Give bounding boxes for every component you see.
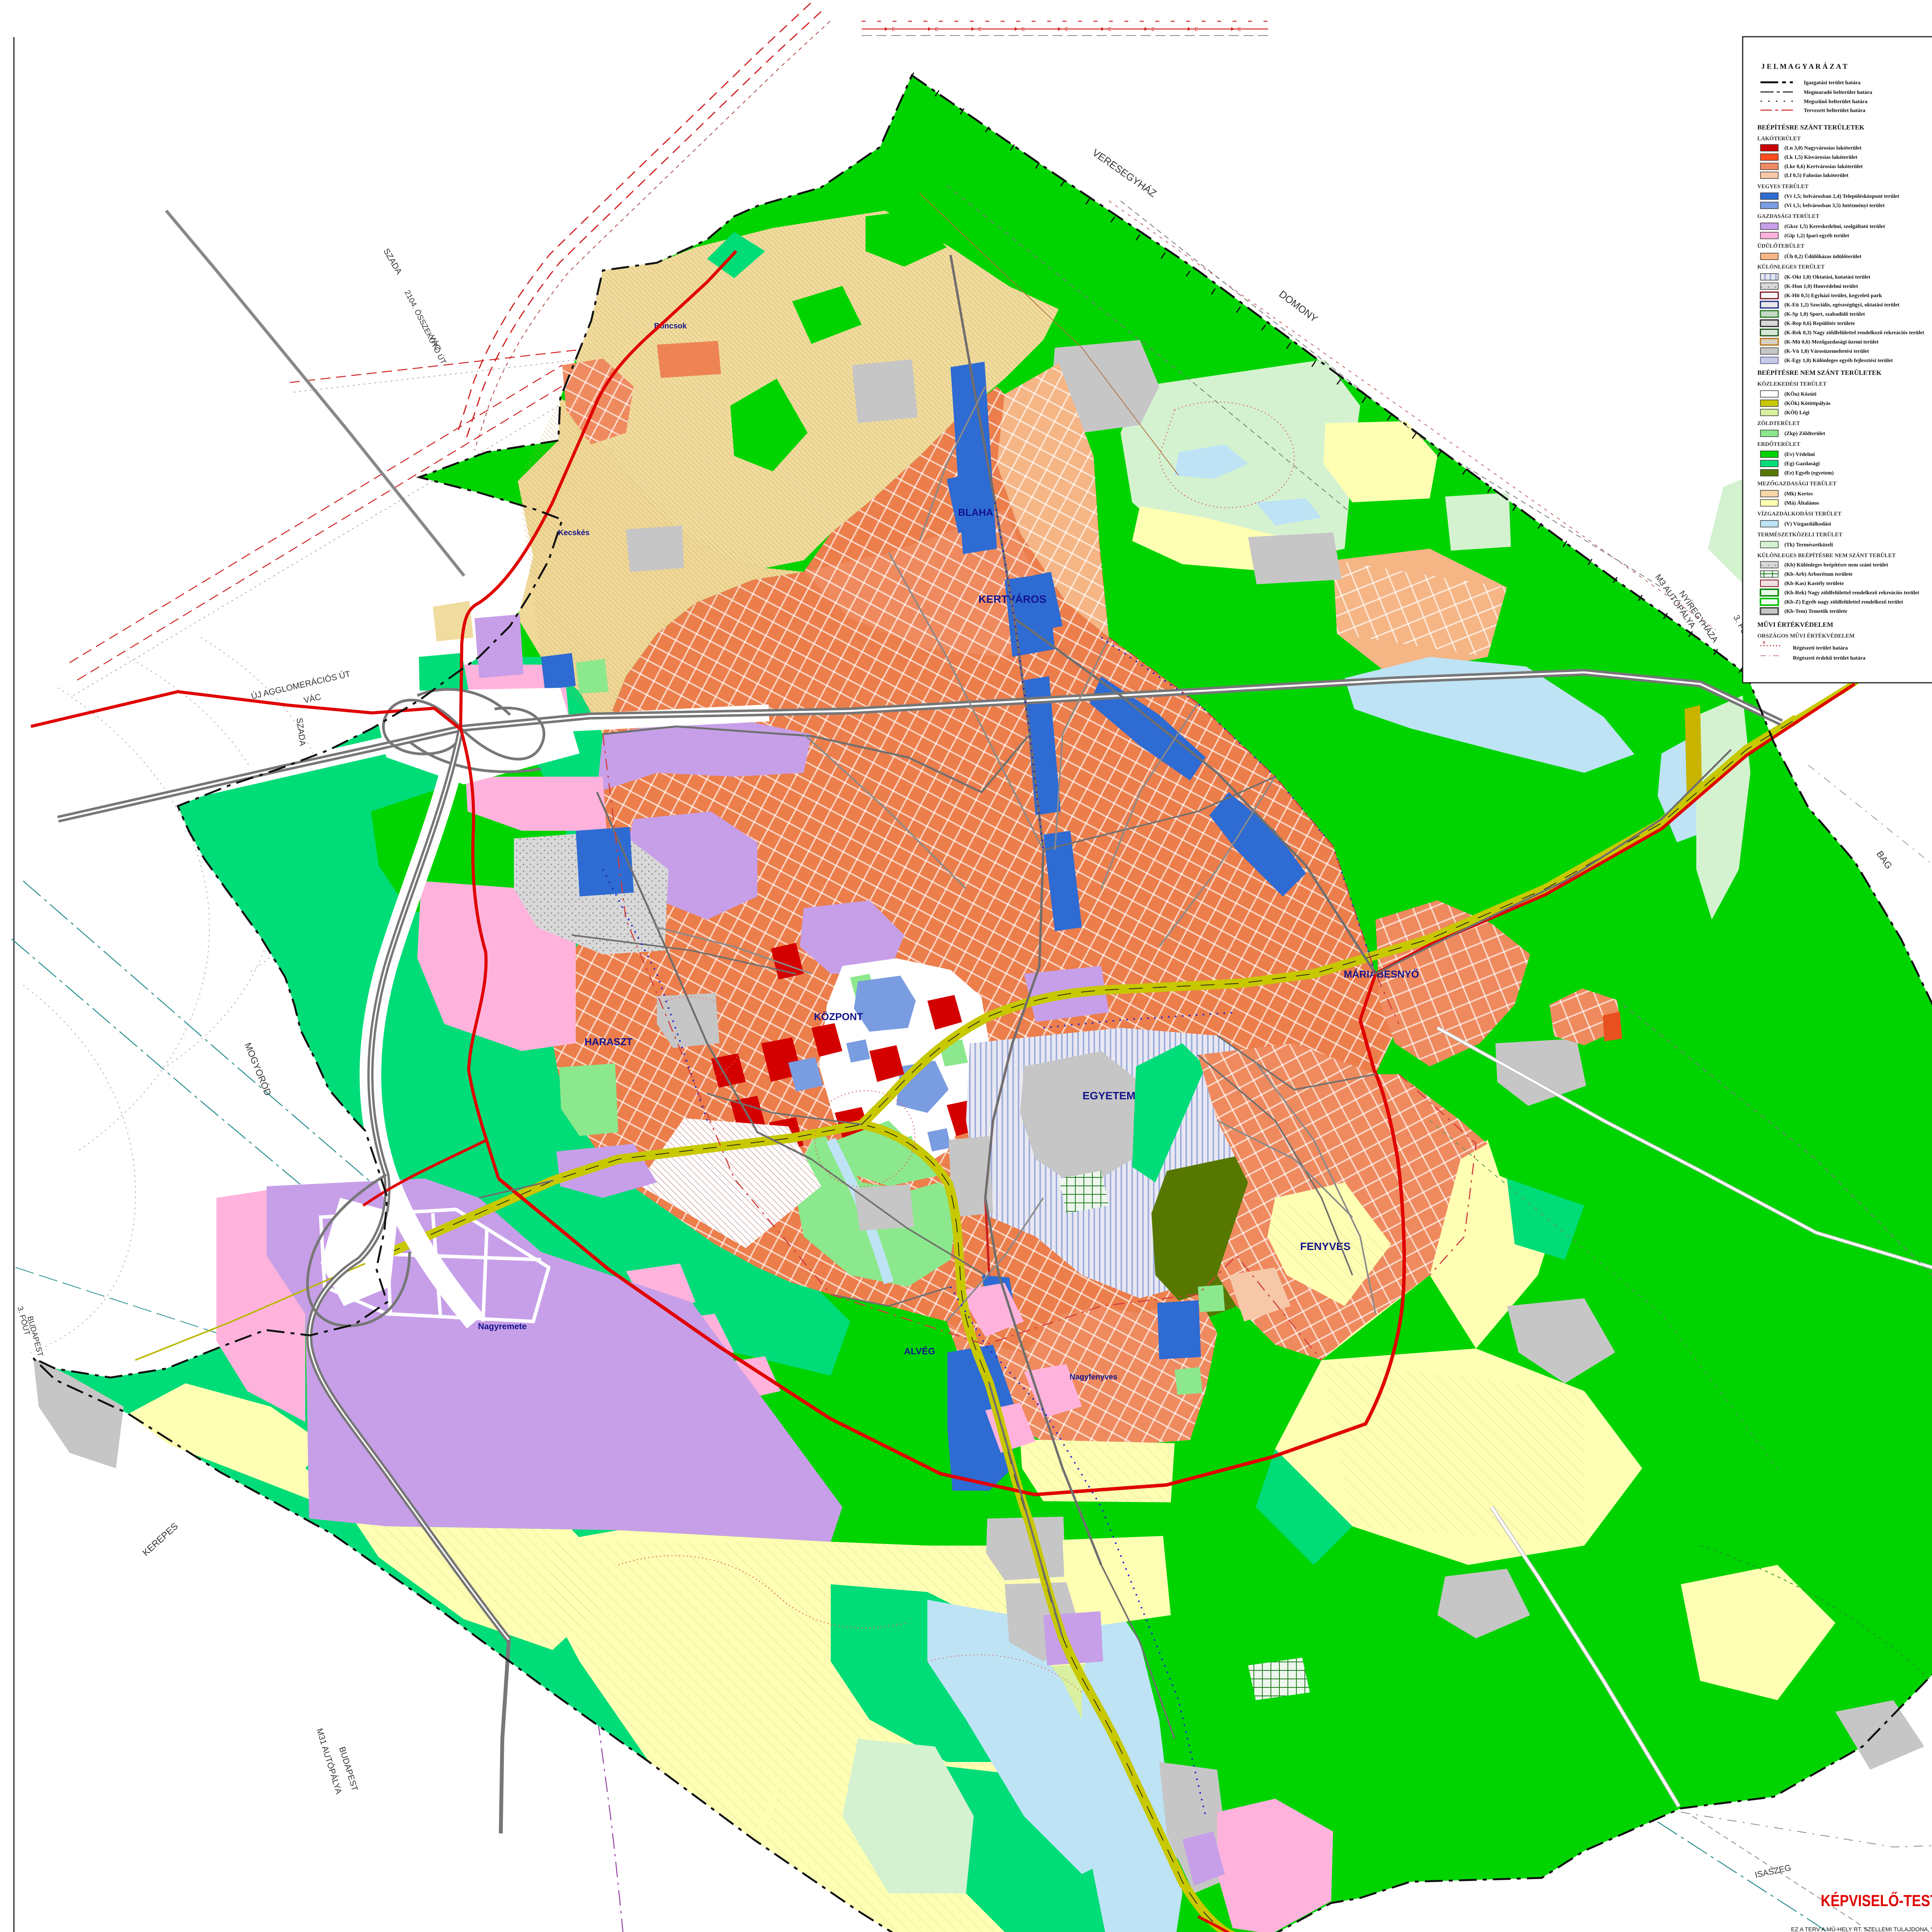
svg-text:KÜLÖNLEGES TERÜLET: KÜLÖNLEGES TERÜLET bbox=[1757, 264, 1825, 270]
svg-text:KÉPVISELŐ-TESTÜLETI ELFOGADÁSR: KÉPVISELŐ-TESTÜLETI ELFOGADÁSRA bbox=[1821, 1891, 1932, 1910]
svg-text:(Kb-Kas) Kastély területe: (Kb-Kas) Kastély területe bbox=[1784, 581, 1844, 587]
svg-text:HARASZT: HARASZT bbox=[585, 1036, 633, 1048]
svg-text:ALVÉG: ALVÉG bbox=[904, 1346, 935, 1357]
svg-text:Igazgatási terület határa: Igazgatási terület határa bbox=[1804, 80, 1861, 86]
svg-text:ORSZÁGOS MŰVI ÉRTÉKVÉDELEM: ORSZÁGOS MŰVI ÉRTÉKVÉDELEM bbox=[1757, 633, 1855, 639]
svg-text:E: E bbox=[1195, 26, 1198, 32]
svg-text:(Eg) Gazdasági: (Eg) Gazdasági bbox=[1784, 461, 1820, 467]
svg-text:(K-Egy 1,0) Különleges egyéb f: (K-Egy 1,0) Különleges egyéb fejlesztési… bbox=[1784, 358, 1893, 364]
svg-text:(Zkp) Zöldterület: (Zkp) Zöldterület bbox=[1784, 431, 1825, 437]
svg-text:ZÖLDTERÜLET: ZÖLDTERÜLET bbox=[1757, 420, 1800, 427]
svg-text:(KÖk) Kötöttpályás: (KÖk) Kötöttpályás bbox=[1784, 400, 1831, 406]
svg-text:E: E bbox=[1151, 26, 1155, 32]
svg-text:EZ A TERV A MŰ-HELY RT.: EZ A TERV A MŰ-HELY RT. SZELLEMI TULAJDO… bbox=[1791, 1926, 1932, 1932]
svg-text:(KÖu) Közúti: (KÖu) Közúti bbox=[1784, 391, 1816, 397]
svg-text:MŰVI ÉRTÉKVÉDELEM: MŰVI ÉRTÉKVÉDELEM bbox=[1757, 621, 1833, 628]
svg-text:BEÉPÍTÉSRE SZÁNT TERÜLETEK: BEÉPÍTÉSRE SZÁNT TERÜLETEK bbox=[1757, 124, 1865, 131]
svg-text:(Lk 1,5) Kisvárosias lakóterül: (Lk 1,5) Kisvárosias lakóterület bbox=[1784, 155, 1857, 160]
svg-text:(Lf 0,5) Falusias lakóterület: (Lf 0,5) Falusias lakóterület bbox=[1784, 173, 1849, 179]
svg-text:Tervezett belterület határa: Tervezett belterület határa bbox=[1804, 108, 1866, 114]
svg-text:(Üh 0,2) Üdülőházas üdülőterül: (Üh 0,2) Üdülőházas üdülőterület bbox=[1784, 253, 1861, 260]
svg-text:(K-Rep 0,6) Repülőtér területe: (K-Rep 0,6) Repülőtér területe bbox=[1784, 321, 1855, 327]
svg-text:Régészeti terület határa: Régészeti terület határa bbox=[1793, 645, 1848, 651]
svg-text:(Má) Általános: (Má) Általános bbox=[1784, 500, 1819, 506]
svg-text:Megmaradó belterület határa: Megmaradó belterület határa bbox=[1804, 90, 1872, 95]
svg-text:EGYETEM: EGYETEM bbox=[1083, 1090, 1136, 1102]
svg-text:ERDŐTERÜLET: ERDŐTERÜLET bbox=[1757, 441, 1801, 447]
svg-text:Kecskés: Kecskés bbox=[558, 529, 589, 537]
svg-text:(K-Mü 0,6) Mezőgazdasági üzemi: (K-Mü 0,6) Mezőgazdasági üzemi terület bbox=[1784, 339, 1879, 345]
svg-text:E: E bbox=[1065, 26, 1068, 32]
svg-text:KÖZPONT: KÖZPONT bbox=[814, 1011, 863, 1022]
svg-text:(K-Hit 0,5) Egyházi terület, k: (K-Hit 0,5) Egyházi terület, kegyeleti p… bbox=[1784, 293, 1882, 299]
svg-text:VÍZGAZDÁLKODÁSI TERÜLET: VÍZGAZDÁLKODÁSI TERÜLET bbox=[1757, 510, 1842, 517]
svg-text:(Kb-Rek) Nagy zöldfelülettel r: (Kb-Rek) Nagy zöldfelülettel rendelkező … bbox=[1784, 590, 1919, 596]
svg-text:LAKÓTERÜLET: LAKÓTERÜLET bbox=[1757, 135, 1801, 142]
svg-text:(Gip 1,2) Ipari egyéb terület: (Gip 1,2) Ipari egyéb terület bbox=[1784, 233, 1849, 239]
svg-text:J E L M A G Y A R Á Z A T: J E L M A G Y A R Á Z A T bbox=[1761, 62, 1847, 71]
svg-text:(Lke 0,6) Kertvárosias lakóter: (Lke 0,6) Kertvárosias lakóterület bbox=[1784, 164, 1863, 170]
svg-text:(Kb-Z) Egyéb nagy zöldfelülett: (Kb-Z) Egyéb nagy zöldfelülettel rendelk… bbox=[1784, 599, 1903, 605]
svg-text:(KÖl) Légi: (KÖl) Légi bbox=[1784, 409, 1810, 416]
svg-text:(Tk) Természetközeli: (Tk) Természetközeli bbox=[1784, 542, 1833, 548]
svg-text:(Mk) Kertes: (Mk) Kertes bbox=[1784, 491, 1813, 497]
svg-text:MEZŐGAZDASÁGI TERÜLET: MEZŐGAZDASÁGI TERÜLET bbox=[1757, 480, 1837, 487]
svg-text:Régészeti érdekű terület határ: Régészeti érdekű terület határa bbox=[1793, 655, 1866, 661]
svg-text:(Ln 3,0) Nagyvárosias lakóterü: (Ln 3,0) Nagyvárosias lakóterület bbox=[1784, 145, 1862, 151]
svg-text:E: E bbox=[1022, 26, 1025, 32]
svg-text:(V) Vízgazdálkodási: (V) Vízgazdálkodási bbox=[1784, 521, 1831, 527]
svg-text:(K-Vü 1,0) Városüzemeltetési t: (K-Vü 1,0) Városüzemeltetési terület bbox=[1784, 349, 1869, 354]
svg-text:(Gksz 1,5) Kereskedelmi, szolg: (Gksz 1,5) Kereskedelmi, szolgáltató ter… bbox=[1784, 224, 1885, 230]
svg-text:Megszűnő belterület határa: Megszűnő belterület határa bbox=[1804, 99, 1867, 105]
svg-text:Nagyremete: Nagyremete bbox=[478, 1321, 527, 1331]
svg-text:(K-Okt 1,0) Oktatási, kutatási: (K-Okt 1,0) Oktatási, kutatási terület bbox=[1784, 274, 1871, 280]
svg-text:(Kb) Különleges beépítésre nem: (Kb) Különleges beépítésre nem szánt ter… bbox=[1784, 562, 1888, 568]
svg-text:(K-Rek 0,3) Nagy zöldfelülette: (K-Rek 0,3) Nagy zöldfelülettel rendelke… bbox=[1784, 330, 1924, 336]
svg-text:(Kb-Arb) Arborétum területe: (Kb-Arb) Arborétum területe bbox=[1784, 571, 1853, 577]
svg-text:E: E bbox=[1108, 26, 1112, 32]
svg-text:KÜLÖNLEGES BEÉPÍTÉSRE NEM SZÁN: KÜLÖNLEGES BEÉPÍTÉSRE NEM SZÁNT TERÜLET bbox=[1757, 552, 1896, 559]
svg-text:(Vi 1,5; belvárosban 3,5) Inté: (Vi 1,5; belvárosban 3,5) Intézményi ter… bbox=[1784, 203, 1885, 209]
svg-text:(K-Eü 1,2) Szociális, egészség: (K-Eü 1,2) Szociális, egészségügyi, okta… bbox=[1784, 302, 1900, 308]
svg-text:Nagyfenyves: Nagyfenyves bbox=[1070, 1373, 1117, 1381]
svg-text:(Vt 1,5; belvárosban 2,4) Tele: (Vt 1,5; belvárosban 2,4) Településközpo… bbox=[1784, 194, 1900, 199]
svg-text:GAZDASÁGI TERÜLET: GAZDASÁGI TERÜLET bbox=[1757, 213, 1820, 219]
svg-text:(K-Hon 1,0) Honvédelmi terület: (K-Hon 1,0) Honvédelmi terület bbox=[1784, 284, 1858, 289]
svg-text:E: E bbox=[892, 26, 895, 32]
svg-text:(Kb-Tem) Temetők területe: (Kb-Tem) Temetők területe bbox=[1784, 609, 1847, 614]
svg-text:BEÉPÍTÉSRE NEM SZÁNT TERÜLETEK: BEÉPÍTÉSRE NEM SZÁNT TERÜLETEK bbox=[1757, 369, 1882, 376]
svg-text:KÖZLEKEDÉSI TERÜLET: KÖZLEKEDÉSI TERÜLET bbox=[1757, 381, 1827, 387]
svg-text:ÜDÜLŐTERÜLET: ÜDÜLŐTERÜLET bbox=[1757, 243, 1804, 249]
svg-text:R: R bbox=[1763, 641, 1766, 645]
svg-text:E: E bbox=[1238, 26, 1242, 32]
svg-text:E: E bbox=[935, 26, 939, 32]
svg-text:BLAHA: BLAHA bbox=[958, 507, 993, 518]
svg-text:(Ev) Védelmi: (Ev) Védelmi bbox=[1784, 452, 1815, 457]
svg-text:(K-Sp 1,0) Sport, szabadidő te: (K-Sp 1,0) Sport, szabadidő terület bbox=[1784, 311, 1865, 317]
svg-text:(Ee) Egyéb (egyetem): (Ee) Egyéb (egyetem) bbox=[1784, 470, 1834, 476]
svg-text:E: E bbox=[978, 26, 982, 32]
svg-text:TERMÉSZETKÖZELI TERÜLET: TERMÉSZETKÖZELI TERÜLET bbox=[1757, 531, 1842, 538]
svg-text:VEGYES TERÜLET: VEGYES TERÜLET bbox=[1757, 183, 1809, 190]
